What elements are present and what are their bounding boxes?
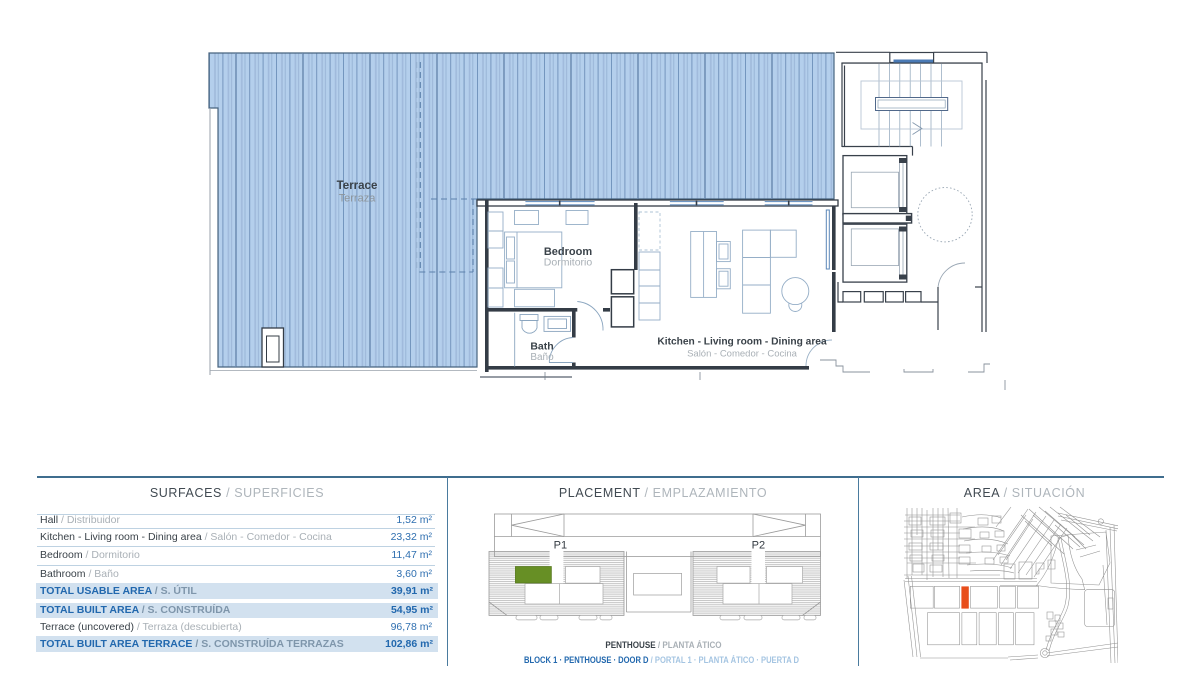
svg-text:Terraza: Terraza: [339, 193, 377, 205]
svg-text:P1: P1: [554, 540, 567, 552]
svg-text:Bath: Bath: [530, 341, 553, 353]
svg-text:Kitchen - Living room - Dining: Kitchen - Living room - Dining area: [657, 337, 827, 348]
svg-text:Dormitorio: Dormitorio: [544, 257, 593, 269]
svg-text:P2: P2: [752, 540, 765, 552]
svg-text:Terrace: Terrace: [337, 180, 378, 192]
svg-text:Baño: Baño: [530, 352, 554, 363]
svg-text:Salón - Comedor - Cocina: Salón - Comedor - Cocina: [687, 349, 798, 360]
